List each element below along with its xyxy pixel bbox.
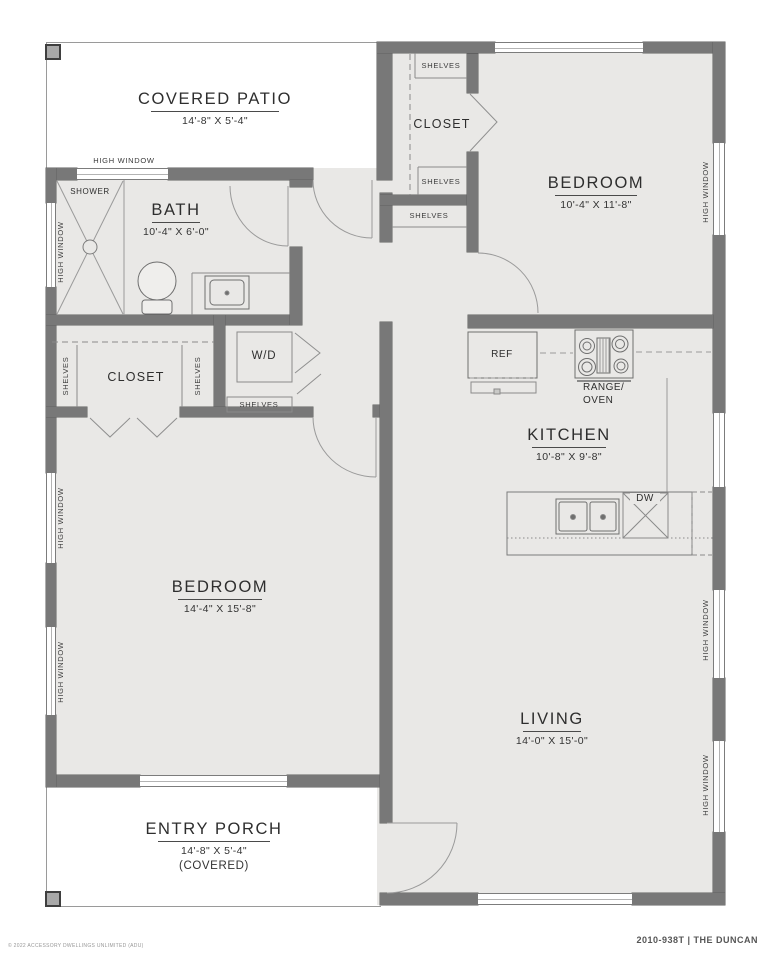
label-underline: [152, 222, 200, 223]
wall-segment: [46, 168, 56, 203]
high-window-label-vertical: HIGH WINDOW: [56, 217, 66, 287]
copyright-text: © 2022 ACCESSORY DWELLINGS UNLIMITED (AD…: [8, 943, 144, 949]
window: [478, 893, 632, 905]
room-dims: 14'-8" X 5'-4": [95, 115, 335, 127]
closet-lower-label: CLOSET: [96, 370, 176, 384]
wall-segment: [380, 322, 392, 823]
shelves-label: SHELVES: [411, 61, 471, 70]
room-dims: 14'-8" X 5'-4": [94, 845, 334, 857]
room-dims: 10'-4" X 11'-8": [476, 199, 716, 211]
wall-segment: [46, 775, 140, 787]
high-window-label-vertical: HIGH WINDOW: [56, 483, 66, 553]
closet-upper-label: CLOSET: [402, 117, 482, 131]
wall-segment: [380, 195, 468, 205]
wall-segment: [713, 678, 725, 741]
room-name: BEDROOM: [476, 174, 716, 193]
patio-edge-left: [46, 42, 47, 168]
wall-segment: [214, 315, 225, 417]
wall-segment: [632, 893, 725, 905]
label-underline: [158, 841, 270, 842]
range-oven-label-line1: RANGE/: [583, 382, 643, 393]
shower-label: SHOWER: [60, 187, 120, 196]
high-window: [713, 590, 725, 678]
room-label-bedroom-upper: BEDROOM 10'-4" X 11'-8": [476, 174, 716, 211]
room-name: BEDROOM: [100, 578, 340, 597]
wall-segment: [46, 315, 302, 325]
high-window-label-vertical: HIGH WINDOW: [56, 637, 66, 707]
room-name: ENTRY PORCH: [94, 820, 334, 839]
room-name: BATH: [56, 201, 296, 220]
room-label-kitchen: KITCHEN 10'-8" X 9'-8": [449, 426, 689, 463]
wall-segment: [290, 247, 302, 325]
room-label-living: LIVING 14'-0" X 15'-0": [432, 710, 672, 747]
room-name: KITCHEN: [449, 426, 689, 445]
room-fill-left-wing: [46, 168, 392, 787]
room-label-entry-porch: ENTRY PORCH 14'-8" X 5'-4" (COVERED): [94, 820, 334, 872]
high-window-label-vertical: HIGH WINDOW: [701, 157, 711, 227]
label-underline: [178, 599, 262, 600]
label-underline: [532, 447, 606, 448]
wall-segment: [468, 315, 713, 328]
wall-segment: [290, 180, 312, 187]
shelves-label-vertical: SHELVES: [61, 341, 71, 411]
shelves-label: SHELVES: [411, 177, 471, 186]
high-window-label: HIGH WINDOW: [84, 156, 164, 165]
wall-segment: [380, 893, 478, 905]
shelves-label: SHELVES: [399, 211, 459, 220]
label-underline: [555, 195, 637, 196]
porch-post: [45, 891, 61, 907]
plan-code-text: 2010-938T | THE DUNCAN: [636, 935, 758, 945]
high-window-label-vertical: HIGH WINDOW: [701, 595, 711, 665]
wall-segment: [713, 487, 725, 590]
high-window: [46, 473, 56, 563]
room-dims: 10'-4" X 6'-0": [56, 226, 296, 238]
room-dims: 14'-0" X 15'-0": [432, 735, 672, 747]
label-underline: [151, 111, 279, 112]
window: [495, 42, 643, 53]
room-name: LIVING: [432, 710, 672, 729]
high-window: [77, 168, 168, 180]
wall-segment: [377, 42, 495, 53]
wall-segment: [46, 563, 56, 627]
high-window: [46, 203, 56, 287]
wall-segment: [168, 168, 313, 180]
dishwasher-label: DW: [630, 493, 660, 504]
high-window: [46, 627, 56, 715]
window: [140, 775, 287, 787]
room-note: (COVERED): [94, 860, 334, 872]
room-name: COVERED PATIO: [95, 90, 335, 109]
porch-edge-bottom: [46, 906, 381, 907]
shelves-label-vertical: SHELVES: [193, 341, 203, 411]
room-fill-right-wing: [377, 42, 725, 905]
range-oven-label-line2: OVEN: [583, 395, 643, 406]
washer-dryer-label: W/D: [234, 350, 294, 362]
wall-segment: [713, 42, 725, 143]
room-label-bath: BATH 10'-4" X 6'-0": [56, 201, 296, 238]
wall-segment: [377, 42, 392, 180]
wall-segment: [467, 54, 478, 93]
porch-edge-left: [46, 787, 47, 907]
room-label-covered-patio: COVERED PATIO 14'-8" X 5'-4": [95, 90, 335, 127]
room-dims: 10'-8" X 9'-8": [449, 451, 689, 463]
wall-segment: [713, 235, 725, 413]
patio-post: [45, 44, 61, 60]
high-window: [713, 741, 725, 832]
room-dims: 14'-4" X 15'-8": [100, 603, 340, 615]
window: [713, 413, 725, 487]
shelves-label: SHELVES: [229, 400, 289, 409]
wall-segment: [46, 715, 56, 787]
label-underline: [523, 731, 581, 732]
refrigerator-label: REF: [472, 349, 532, 360]
room-label-bedroom-lower: BEDROOM 14'-4" X 15'-8": [100, 578, 340, 615]
patio-edge-top: [46, 42, 377, 43]
wall-segment: [287, 775, 392, 787]
high-window-label-vertical: HIGH WINDOW: [701, 750, 711, 820]
floor-plan: COVERED PATIO 14'-8" X 5'-4" BATH 10'-4"…: [0, 0, 768, 954]
